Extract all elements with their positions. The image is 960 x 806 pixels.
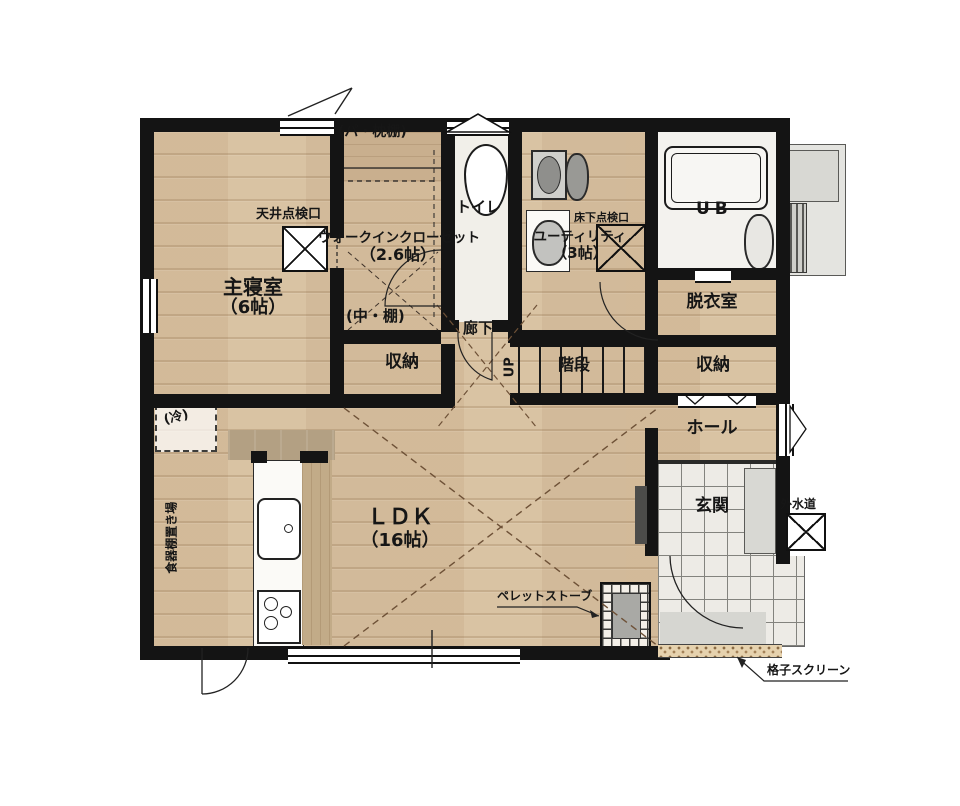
wall-bedroom-wic-upper (330, 132, 344, 238)
bedroom-left-window (141, 279, 158, 333)
wall-stairs-bottom (510, 393, 658, 405)
kitchen-stove (257, 590, 301, 644)
room-label-master-bedroom: 主寝室 （6帖） (193, 276, 313, 319)
bedroom-window-leader (288, 88, 352, 116)
ldk-bottom-window (288, 647, 520, 664)
room-label-stairs: 階段 (558, 356, 590, 374)
shoe-cabinet (635, 486, 647, 544)
kitchen-side-counter (302, 460, 332, 645)
wall-utility-ub (645, 132, 658, 335)
pellet-stove (600, 582, 651, 650)
kitchen-sink (257, 498, 301, 560)
wall-toilet-bottom-l (441, 320, 459, 332)
room-label-entrance: 玄関 (662, 497, 762, 516)
pipe-pillow-shelf-label: (パ・枕棚) (338, 125, 407, 141)
room-size: （16帖） (340, 531, 460, 551)
underfloor-access-label: 床下点検口 (574, 212, 629, 224)
wall-left (140, 118, 154, 660)
toilet-top-window (447, 120, 509, 136)
wall-bedroom-bottom (154, 394, 344, 408)
room-label-dressing: 脱衣室 (662, 293, 762, 312)
room-label-wic: ウォークインクローゼット （2.6帖） (318, 231, 478, 264)
kitchen-counter-post-r (300, 451, 328, 463)
room-label-hall: ホール (662, 419, 762, 438)
room-label-toilet: トイレ (456, 199, 501, 216)
room-label-unit-bath: UB (696, 200, 733, 219)
room-label-ldk: ＬＤＫ （16帖） (340, 506, 460, 551)
wall-toilet-utility (508, 132, 522, 320)
ceiling-access-label: 天井点検口 (256, 208, 321, 223)
lattice-screen-strip (658, 644, 782, 658)
room-size: （2.6帖） (318, 246, 478, 264)
hall-right-window (777, 404, 794, 456)
ub-door-opening (695, 269, 731, 283)
lattice-screen-label: 格子スクリーン (767, 664, 850, 677)
middle-shelf-label: (中・棚) (346, 308, 405, 325)
wall-wic-bottom (344, 330, 441, 344)
room-label-utility: ユーティリティ （3帖） (515, 230, 645, 262)
up-label: UP (504, 354, 519, 380)
washing-machine (531, 150, 567, 200)
room-label-storage-upper: 収納 (668, 356, 758, 375)
bath-washbasin (744, 214, 774, 270)
wall-dressing-storage (658, 335, 776, 347)
utility-basin (565, 153, 589, 201)
room-name: 主寝室 (193, 276, 313, 298)
closet-bifold-opening (678, 394, 756, 408)
porch-step (660, 612, 766, 644)
room-name: ＬＤＫ (340, 506, 460, 531)
floor-plan-canvas: 主寝室 （6帖） 天井点検口 ウォークインクローゼット （2.6帖） (パ・枕棚… (0, 0, 960, 806)
room-label-corridor: 廊下 (463, 320, 493, 337)
room-size: （3帖） (515, 245, 645, 262)
bedroom-top-window (280, 119, 334, 136)
wall-wic-toilet (441, 132, 455, 320)
room-size: （6帖） (193, 298, 313, 318)
wall-storage-left-bottom (344, 394, 455, 408)
room-name: ユーティリティ (515, 230, 645, 245)
room-name: ウォークインクローゼット (318, 231, 478, 246)
outdoor-faucet-marker (786, 513, 826, 551)
pellet-stove-label: ペレットストーブ (497, 590, 592, 603)
room-label-storage-lower: 収納 (357, 353, 447, 372)
wall-stairs-top (510, 335, 658, 347)
wall-bedroom-wic-lower (330, 268, 344, 394)
outdoor-faucet-label: 外水道 (780, 498, 816, 511)
water-heater-tank (789, 150, 839, 202)
hall-entrance-step-line (658, 460, 776, 464)
lattice-screen-leader-arrow (737, 657, 746, 668)
kitchen-counter-post-l (251, 451, 267, 463)
wall-stairs-right (645, 335, 658, 405)
cupboard-space-label: 食器棚置き場 (165, 490, 178, 586)
